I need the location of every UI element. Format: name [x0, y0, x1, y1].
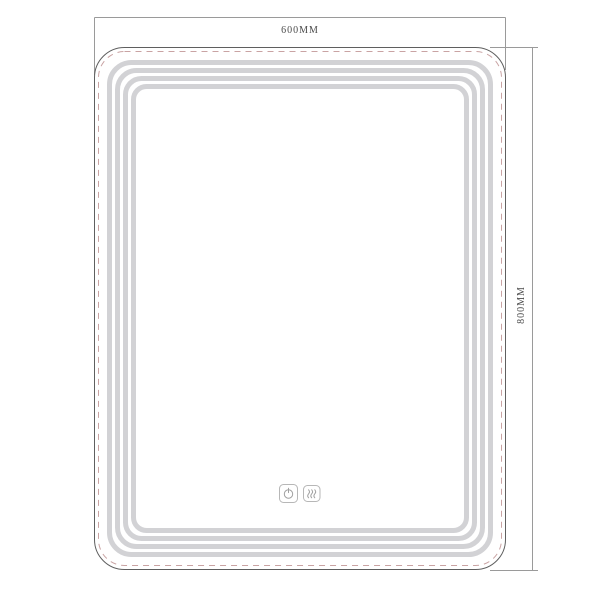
led-band-1: [110, 63, 491, 555]
width-dimension-label: 600MM: [281, 25, 319, 36]
touch-controls: [280, 485, 321, 503]
height-dimension-label: 800MM: [516, 286, 527, 324]
drawing-svg: 600MM 800MM: [0, 0, 600, 600]
mirror-body: [95, 48, 506, 570]
defog-button: [304, 486, 321, 502]
power-button-outline: [280, 485, 298, 503]
led-band-2: [118, 71, 483, 547]
width-dimension: 600MM: [95, 18, 506, 76]
mirror-dashed-line: [99, 52, 502, 566]
height-dimension: 800MM: [490, 48, 538, 571]
power-button: [280, 485, 298, 503]
mirror-technical-drawing: 600MM 800MM: [0, 0, 600, 600]
led-band-3: [126, 79, 475, 539]
led-band-4: [134, 87, 467, 531]
mirror-outer-edge: [95, 48, 506, 570]
